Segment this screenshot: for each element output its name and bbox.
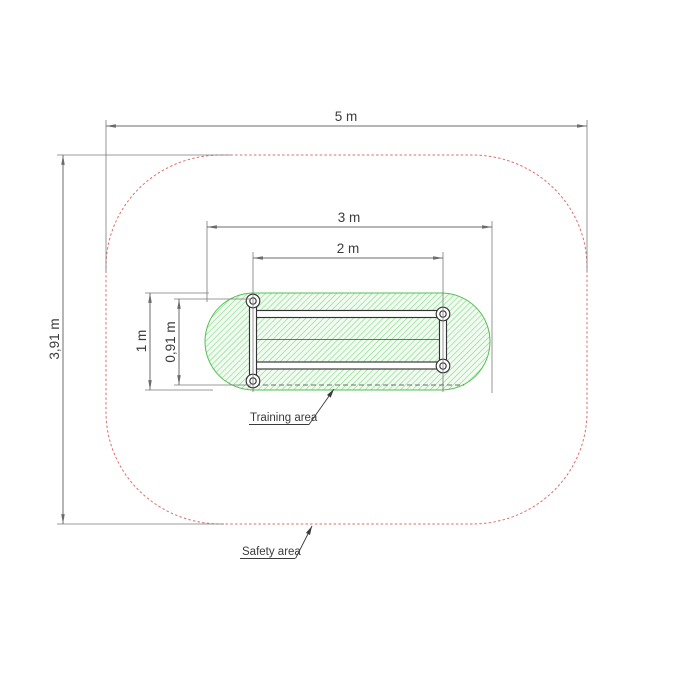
dimension-label-training-width: 3 m bbox=[338, 210, 361, 225]
dimension-label-training-height: 1 m bbox=[134, 330, 149, 353]
technical-drawing: 5 m 3,91 m 3 m 2 m 1 m bbox=[0, 0, 675, 675]
equipment-top-bar bbox=[253, 311, 443, 318]
dimension-label-total-width: 5 m bbox=[335, 109, 358, 124]
training-area-leader-line bbox=[309, 389, 334, 425]
safety-area-label: Safety area bbox=[242, 546, 301, 558]
safety-area-leader-line bbox=[296, 526, 313, 559]
safety-area-label-group: Safety area bbox=[240, 526, 312, 559]
dimension-label-total-height: 3,91 m bbox=[47, 318, 62, 359]
dimension-label-equipment-width: 2 m bbox=[337, 241, 360, 256]
training-area-label-group: Training area bbox=[249, 389, 334, 425]
drawing-canvas: 5 m 3,91 m 3 m 2 m 1 m bbox=[0, 0, 675, 675]
equipment-bottom-bar bbox=[253, 362, 443, 369]
training-area-shape bbox=[205, 293, 490, 390]
training-area-label: Training area bbox=[250, 412, 318, 424]
dimension-label-equipment-height: 0,91 m bbox=[163, 321, 178, 362]
